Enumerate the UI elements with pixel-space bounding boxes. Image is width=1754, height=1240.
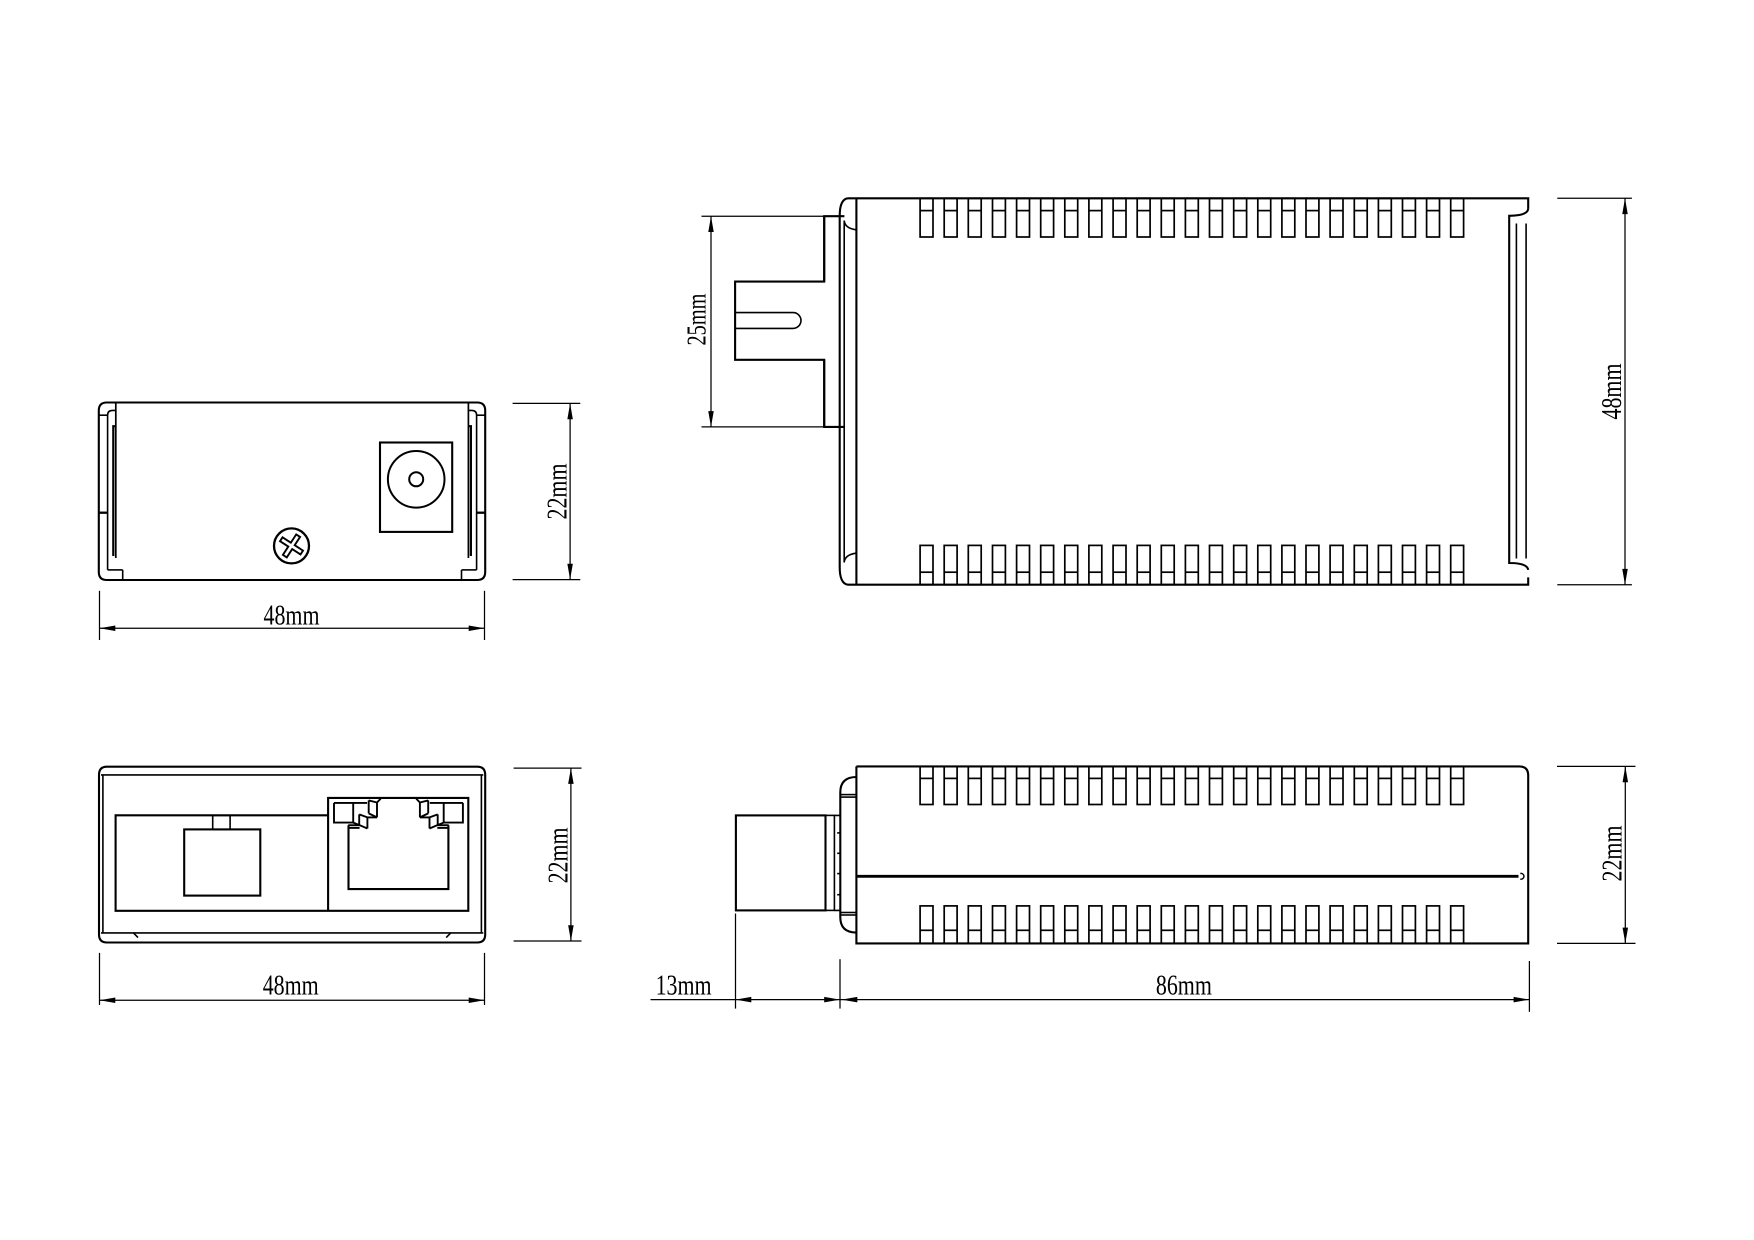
svg-text:13mm: 13mm <box>656 969 712 1001</box>
svg-text:48mm: 48mm <box>264 600 320 632</box>
svg-text:22mm: 22mm <box>542 827 574 883</box>
svg-text:22mm: 22mm <box>1597 825 1629 881</box>
svg-text:86mm: 86mm <box>1156 969 1212 1001</box>
svg-text:48mm: 48mm <box>263 969 319 1001</box>
svg-text:22mm: 22mm <box>542 463 574 519</box>
svg-text:25mm: 25mm <box>681 294 712 346</box>
svg-text:48mm: 48mm <box>1596 363 1628 419</box>
